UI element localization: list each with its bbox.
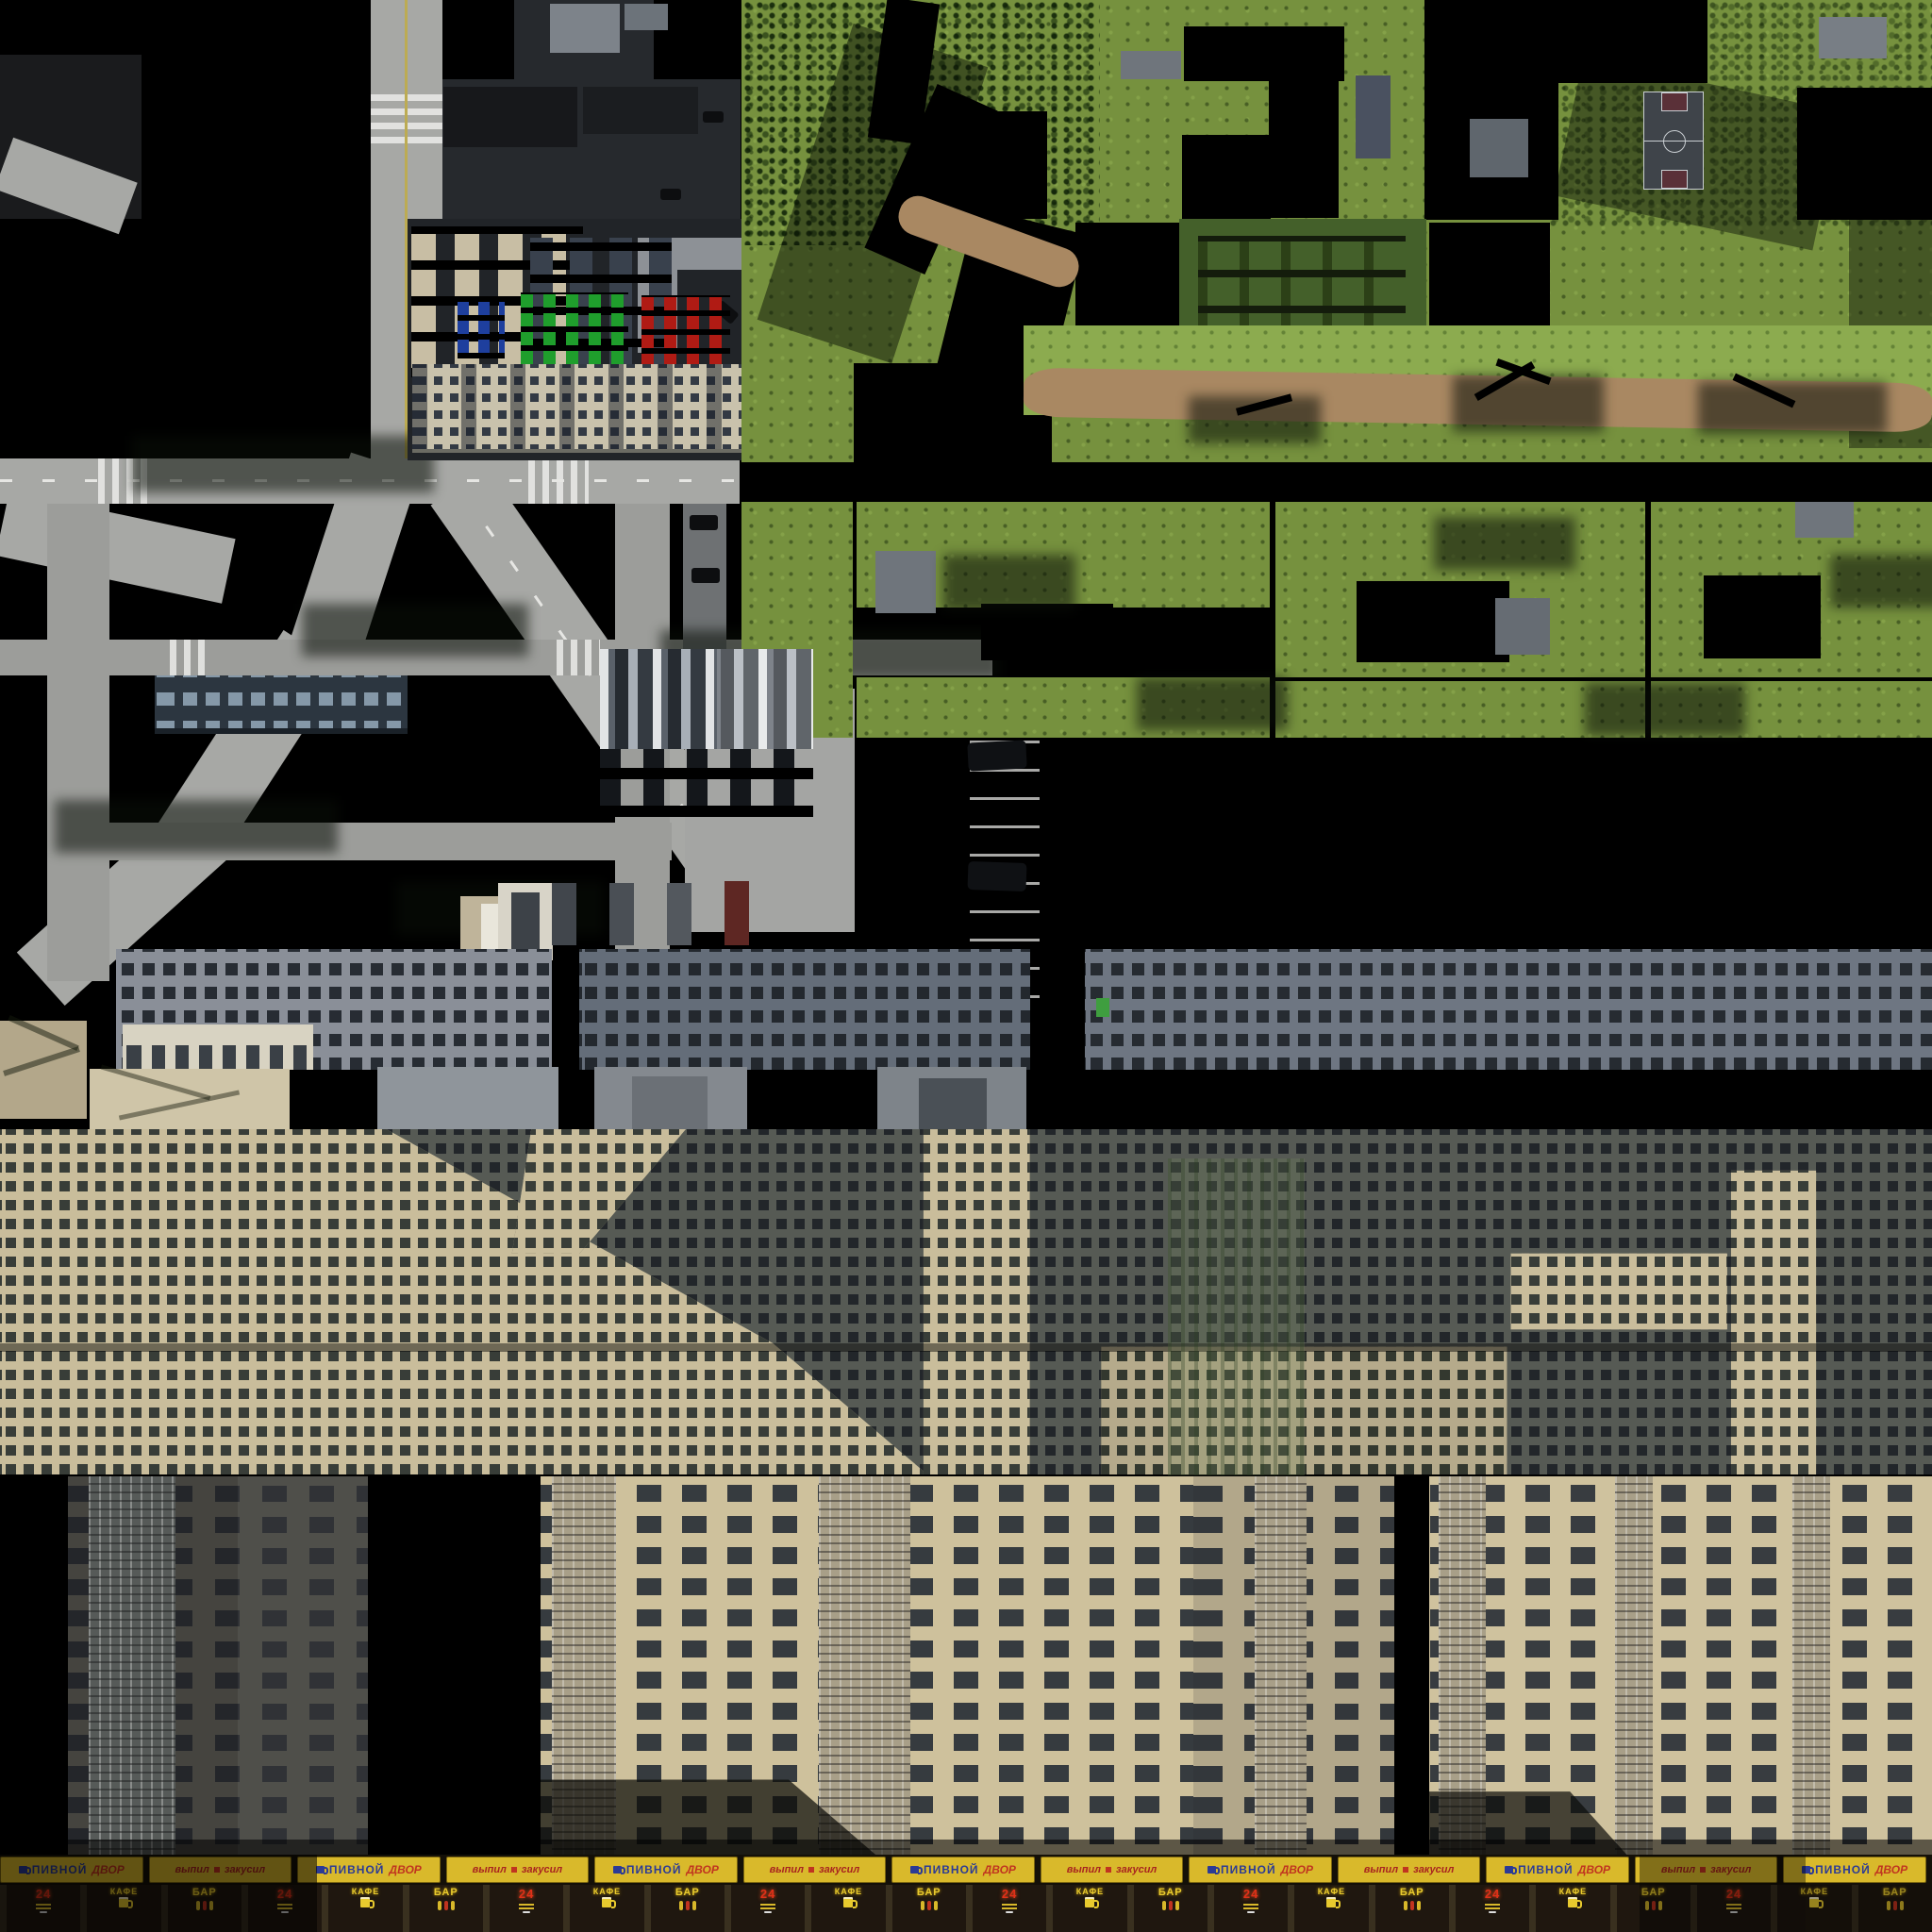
wall-chunk-beige <box>90 1069 290 1129</box>
facade-base-line <box>155 728 408 734</box>
door-texture <box>667 883 691 945</box>
wall-chunk-tan <box>0 1021 87 1119</box>
shop-window: 24 <box>724 1885 805 1932</box>
tower-facade-dark <box>68 1476 368 1875</box>
shop-window: КАФЕ <box>1529 1885 1609 1932</box>
banner-word-1: ПИВНОЙ <box>1221 1864 1276 1875</box>
tree-shadow <box>943 555 1075 611</box>
door-dark <box>511 892 540 951</box>
neon-sign: КАФЕ <box>1318 1888 1345 1896</box>
neon-sign: 24 <box>760 1888 775 1900</box>
van <box>967 740 1026 771</box>
branch-shadow <box>119 1091 240 1121</box>
car <box>703 111 724 123</box>
tree-shadow <box>1830 555 1932 608</box>
balcony-column <box>1255 1476 1307 1875</box>
cutout <box>1704 575 1821 658</box>
banner-word-2: ДВОР <box>1281 1864 1313 1875</box>
banner-word-2: ДВОР <box>389 1864 421 1875</box>
door-texture <box>552 883 576 945</box>
wall-inset <box>632 1076 708 1129</box>
roof-dark <box>583 87 698 134</box>
shop-window: 24 <box>966 1885 1046 1932</box>
neon-sign: 24 <box>1485 1888 1500 1900</box>
parked-cars-blue <box>458 298 505 358</box>
menu-lines-icon <box>1002 1902 1017 1915</box>
roof-gray <box>875 551 936 613</box>
tree-shadow <box>1137 677 1288 730</box>
banner-separator-icon <box>1403 1867 1408 1873</box>
banner-word-1: ПИВНОЙ <box>1518 1864 1574 1875</box>
menu-lines-icon <box>519 1902 534 1915</box>
cutout <box>981 604 1113 660</box>
crosswalk <box>557 640 600 675</box>
facade-office-dark <box>155 675 408 734</box>
storefront-banner: выпил закусил <box>1338 1857 1481 1883</box>
shop-window: БАР <box>1369 1885 1449 1932</box>
beer-mug-icon <box>1505 1866 1513 1874</box>
cutout <box>1558 0 1707 83</box>
parked-cars-green <box>521 292 628 370</box>
patron-figures-icon <box>1162 1901 1179 1910</box>
storefront-dim-right <box>1806 1885 1932 1932</box>
banner-word-1: ПИВНОЙ <box>329 1864 385 1875</box>
cutout <box>1184 26 1344 81</box>
door-texture-red <box>724 881 749 945</box>
tree-shadow <box>302 604 528 657</box>
wall-inset <box>919 1078 987 1129</box>
beer-mug-icon <box>1326 1899 1336 1907</box>
roof-gray <box>1470 119 1528 177</box>
facade-panel-5story <box>1085 949 1932 1070</box>
roof-gray <box>1795 502 1854 538</box>
roof-gray <box>1121 51 1181 79</box>
facade-panel-5story <box>579 949 1030 1070</box>
banner-word-2: закусил <box>522 1865 562 1875</box>
neon-sign: БАР <box>675 1888 700 1898</box>
neon-sign: БАР <box>434 1888 458 1898</box>
balcony-column <box>1615 1476 1653 1875</box>
banner-word-1: ПИВНОЙ <box>1815 1864 1871 1875</box>
neon-sign: БАР <box>917 1888 941 1898</box>
tree-shadow <box>132 436 434 492</box>
cutout <box>1269 80 1339 218</box>
neon-sign: 24 <box>1243 1888 1258 1900</box>
cutout <box>1797 88 1932 220</box>
balcony-column <box>89 1476 175 1875</box>
court-key-bottom <box>1661 170 1688 189</box>
tower-facade-dim <box>1193 1476 1394 1875</box>
neon-sign: БАР <box>1400 1888 1424 1898</box>
beer-mug-icon <box>910 1866 919 1874</box>
neon-sign: 24 <box>1002 1888 1017 1900</box>
banner-word-2: закусил <box>819 1865 859 1875</box>
court-key-top <box>1661 92 1688 111</box>
tree-shadow <box>1434 517 1575 570</box>
van <box>967 861 1026 891</box>
basketball-court <box>1643 92 1704 190</box>
patron-figures-icon <box>1404 1901 1421 1910</box>
patron-figures-icon <box>679 1901 696 1910</box>
facade-light-edge <box>238 1476 368 1875</box>
beer-mug-icon <box>613 1866 622 1874</box>
balcony-column <box>819 1476 910 1875</box>
ghost-tower-reflection <box>1168 1158 1305 1475</box>
menu-lines-icon <box>1485 1902 1500 1915</box>
banner-word-2: закусил <box>1413 1865 1454 1875</box>
shop-window: КАФЕ <box>1288 1885 1368 1932</box>
shop-window: БАР <box>886 1885 966 1932</box>
banner-word-1: выпил <box>770 1865 804 1875</box>
car <box>691 568 720 583</box>
shop-window: КАФЕ <box>563 1885 643 1932</box>
banner-word-1: выпил <box>1067 1865 1101 1875</box>
storefront-banner: ПИВНОЙ ДВОР <box>594 1857 738 1883</box>
storefront-banner: выпил закусил <box>743 1857 887 1883</box>
green-balcony-accent <box>1096 998 1109 1017</box>
roof-gray <box>1356 75 1391 158</box>
beer-mug-icon <box>360 1899 370 1907</box>
parked-cars-red <box>641 295 730 373</box>
door-texture <box>609 883 634 945</box>
shop-window: БАР <box>644 1885 724 1932</box>
cutout <box>1357 581 1509 662</box>
neon-sign: КАФЕ <box>1076 1888 1104 1896</box>
shop-window: КАФЕ <box>1046 1885 1126 1932</box>
facade-entrance-band <box>123 1024 313 1070</box>
beer-mug-icon <box>843 1899 853 1907</box>
cutout <box>854 363 1052 462</box>
parked-cars-row <box>600 749 813 817</box>
wall-chunk-gray <box>377 1067 558 1129</box>
storefront-banner: выпил закусил <box>1041 1857 1184 1883</box>
cutout <box>1182 135 1271 222</box>
patron-figures-icon <box>921 1901 938 1910</box>
roof-gray <box>1819 17 1887 58</box>
shop-window: БАР <box>403 1885 483 1932</box>
beer-mug-icon <box>1207 1866 1216 1874</box>
wall-chunk-gray <box>594 1067 747 1129</box>
banner-separator-icon <box>1106 1867 1111 1873</box>
neon-sign: БАР <box>1158 1888 1183 1898</box>
menu-lines-icon <box>760 1902 775 1915</box>
tower-facade-sunlit <box>541 1476 1193 1875</box>
road-branch-left <box>0 491 236 603</box>
roof-gray <box>625 4 668 30</box>
balcony-column <box>1792 1476 1830 1875</box>
banner-separator-icon <box>511 1867 517 1873</box>
banner-word-1: выпил <box>1364 1865 1398 1875</box>
banner-word-2: ДВОР <box>984 1864 1016 1875</box>
storefront-banner: ПИВНОЙ ДВОР <box>1486 1857 1629 1883</box>
road-vertical-left <box>47 504 109 981</box>
wall-chunk-gray <box>877 1067 1026 1129</box>
roof-gray <box>550 4 620 53</box>
branch-shadow <box>101 1065 211 1101</box>
tree-shadow <box>1453 375 1604 432</box>
shop-window: КАФЕ <box>805 1885 885 1932</box>
beer-mug-icon <box>602 1899 611 1907</box>
texture-atlas-canvas: ПИВНОЙ ДВОР выпил закусил ПИВНОЙ ДВОР вы… <box>0 0 1932 1932</box>
beer-mug-icon <box>1568 1899 1577 1907</box>
storefront-dim-left <box>0 1855 317 1932</box>
storefront-dim-mid <box>1640 1855 1806 1932</box>
banner-word-1: ПИВНОЙ <box>626 1864 682 1875</box>
storefront-banner: ПИВНОЙ ДВОР <box>297 1857 441 1883</box>
shop-window: БАР <box>1127 1885 1207 1932</box>
cutout <box>1424 0 1558 220</box>
crosswalk <box>170 640 208 675</box>
neon-sign: КАФЕ <box>593 1888 621 1896</box>
storefront-banner: выпил закусил <box>446 1857 590 1883</box>
banner-word-1: выпил <box>473 1865 507 1875</box>
banner-word-2: закусил <box>1116 1865 1157 1875</box>
car <box>690 515 718 530</box>
neon-sign: КАФЕ <box>1559 1888 1587 1896</box>
banner-word-2: ДВОР <box>1578 1864 1610 1875</box>
tower-facade-sunlit <box>1429 1476 1932 1875</box>
roof-gray <box>1495 598 1550 655</box>
banner-word-2: ДВОР <box>1875 1864 1907 1875</box>
branch-shadow <box>3 1046 80 1076</box>
beer-mug-icon <box>316 1866 325 1874</box>
facade-floor-seam <box>0 1343 1932 1352</box>
car <box>660 189 681 200</box>
storefront-banner: ПИВНОЙ ДВОР <box>1189 1857 1332 1883</box>
shop-window: 24 <box>1449 1885 1529 1932</box>
beer-mug-icon <box>1085 1899 1094 1907</box>
shop-window: 24 <box>1207 1885 1288 1932</box>
shop-window: КАФЕ <box>322 1885 402 1932</box>
ground-shadow-wedge <box>1429 1476 1932 1875</box>
neon-sign: 24 <box>519 1888 534 1900</box>
banner-word-1: ПИВНОЙ <box>924 1864 979 1875</box>
tree-shadow <box>1698 382 1887 434</box>
banner-separator-icon <box>808 1867 814 1873</box>
neon-sign: КАФЕ <box>835 1888 862 1896</box>
cutout <box>953 111 1047 219</box>
patron-figures-icon <box>438 1901 455 1910</box>
tree-shadow <box>55 800 338 853</box>
tree-shadow <box>1585 683 1745 736</box>
storefront-banner: ПИВНОЙ ДВОР <box>891 1857 1035 1883</box>
branch-shadow <box>8 1015 79 1051</box>
neon-sign: КАФЕ <box>352 1888 379 1896</box>
roof-dark <box>443 87 577 147</box>
court-center-circle <box>1663 130 1686 153</box>
stairwell-strips-sunlit <box>717 649 813 749</box>
shop-window: 24 <box>483 1885 563 1932</box>
banner-word-2: ДВОР <box>686 1864 718 1875</box>
menu-lines-icon <box>1243 1902 1258 1915</box>
